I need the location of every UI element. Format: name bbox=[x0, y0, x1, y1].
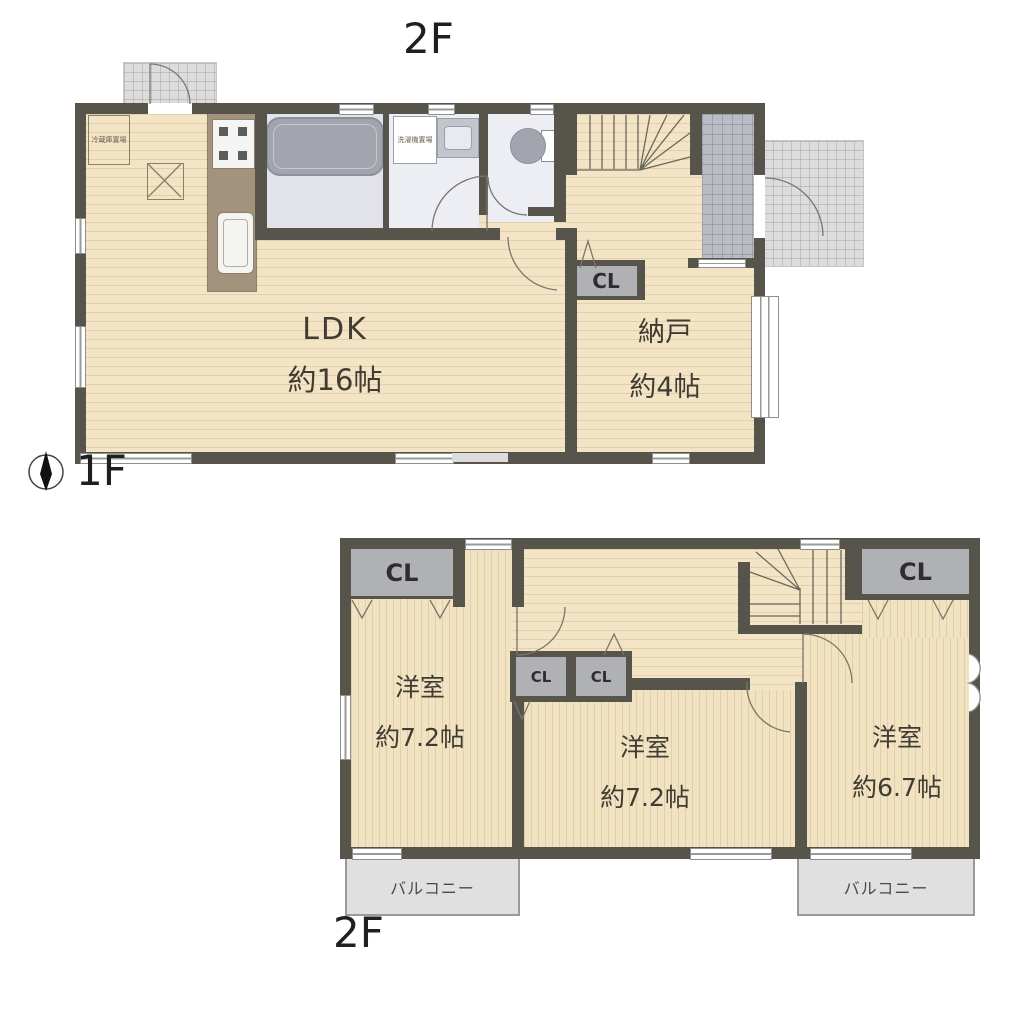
storage-size: 約4帖 bbox=[585, 365, 745, 404]
wall bbox=[630, 678, 750, 690]
bathtub bbox=[266, 117, 384, 176]
wall bbox=[479, 114, 488, 215]
floor1-title: 1F bbox=[76, 446, 127, 495]
wall bbox=[969, 538, 980, 859]
wall bbox=[565, 228, 577, 464]
room-center-label: 洋室 約7.2帖 bbox=[560, 728, 730, 814]
closet-2f-mid1-label: CL bbox=[531, 668, 552, 686]
wall bbox=[738, 562, 750, 632]
window bbox=[452, 453, 508, 462]
room-center-size: 約7.2帖 bbox=[560, 778, 730, 814]
entrance-porch bbox=[763, 140, 864, 267]
wall bbox=[795, 682, 807, 847]
kitchen-sink-inner bbox=[223, 219, 248, 267]
room-center-name: 洋室 bbox=[560, 728, 730, 764]
top-floor-title: 2F bbox=[403, 14, 454, 63]
compass-icon bbox=[29, 451, 63, 491]
burner bbox=[219, 151, 228, 160]
floorplan-canvas: 洗濯機置場 冷蔵庫置場 CL bbox=[0, 0, 1024, 1022]
fridge-space: 冷蔵庫置場 bbox=[88, 115, 130, 165]
fridge-space-label: 冷蔵庫置場 bbox=[92, 136, 127, 145]
toilet-bowl bbox=[510, 128, 546, 164]
burner bbox=[238, 127, 247, 136]
window bbox=[339, 104, 374, 115]
balcony-west-label: バルコニー bbox=[390, 875, 475, 899]
closet-2f-northeast: CL bbox=[862, 549, 969, 600]
window bbox=[428, 104, 455, 115]
wall bbox=[845, 538, 862, 600]
front-door-opening bbox=[754, 175, 765, 238]
closet-2f-mid2: CL bbox=[576, 657, 626, 696]
room-west-name: 洋室 bbox=[340, 668, 500, 704]
storage-label: 納戸 約4帖 bbox=[585, 310, 745, 404]
burner bbox=[219, 127, 228, 136]
window bbox=[810, 848, 912, 860]
window bbox=[800, 539, 840, 550]
balcony-east-label: バルコニー bbox=[844, 875, 929, 899]
closet-2f-mid2-label: CL bbox=[591, 668, 612, 686]
wall bbox=[690, 114, 702, 175]
stove bbox=[212, 119, 255, 169]
storage-name: 納戸 bbox=[585, 310, 745, 349]
closet-1f-label: CL bbox=[592, 269, 619, 293]
window bbox=[698, 259, 746, 268]
room-west-size: 約7.2帖 bbox=[340, 718, 500, 754]
room-east-floor-upper bbox=[862, 598, 969, 638]
room-west-label: 洋室 約7.2帖 bbox=[340, 668, 500, 754]
window bbox=[530, 104, 554, 115]
bathtub-inner bbox=[273, 124, 377, 169]
window bbox=[465, 539, 512, 550]
window bbox=[690, 848, 772, 860]
wall bbox=[255, 114, 267, 232]
window bbox=[395, 453, 454, 464]
window bbox=[352, 848, 402, 860]
wall bbox=[255, 228, 500, 240]
wall bbox=[738, 625, 862, 634]
closet-2f-northeast-label: CL bbox=[899, 558, 932, 586]
burner bbox=[238, 151, 247, 160]
kitchen-sink bbox=[217, 212, 254, 274]
wall bbox=[565, 114, 577, 175]
washer-space-label: 洗濯機置場 bbox=[398, 136, 433, 145]
ldk-size: 約16帖 bbox=[240, 357, 430, 399]
window bbox=[75, 218, 86, 254]
vanity bbox=[437, 118, 479, 158]
storage-window bbox=[751, 296, 779, 418]
vanity-sink bbox=[444, 126, 472, 150]
wall bbox=[75, 103, 86, 464]
room-east-name: 洋室 bbox=[812, 718, 982, 754]
wall bbox=[453, 538, 465, 607]
closet-2f-northwest: CL bbox=[351, 549, 453, 599]
balcony-east: バルコニー bbox=[797, 857, 975, 916]
room-east-label: 洋室 約6.7帖 bbox=[812, 718, 982, 804]
hatch-symbol bbox=[147, 163, 184, 200]
back-door-porch bbox=[123, 62, 217, 109]
closet-1f: CL bbox=[575, 266, 637, 296]
window bbox=[75, 326, 86, 388]
back-door-opening bbox=[148, 103, 192, 114]
wall bbox=[512, 538, 524, 607]
ldk-name: LDK bbox=[240, 312, 430, 347]
closet-2f-mid1: CL bbox=[516, 657, 566, 696]
ldk-label: LDK 約16帖 bbox=[240, 312, 430, 399]
window bbox=[652, 453, 690, 464]
floor2-title: 2F bbox=[333, 908, 384, 957]
closet-2f-northwest-label: CL bbox=[386, 559, 419, 587]
wall bbox=[528, 207, 554, 216]
wall bbox=[383, 114, 389, 232]
room-east-size: 約6.7帖 bbox=[812, 768, 982, 804]
washer-space: 洗濯機置場 bbox=[393, 116, 437, 164]
wall bbox=[512, 700, 524, 847]
entrance-tile bbox=[702, 114, 754, 258]
wall bbox=[340, 538, 980, 549]
